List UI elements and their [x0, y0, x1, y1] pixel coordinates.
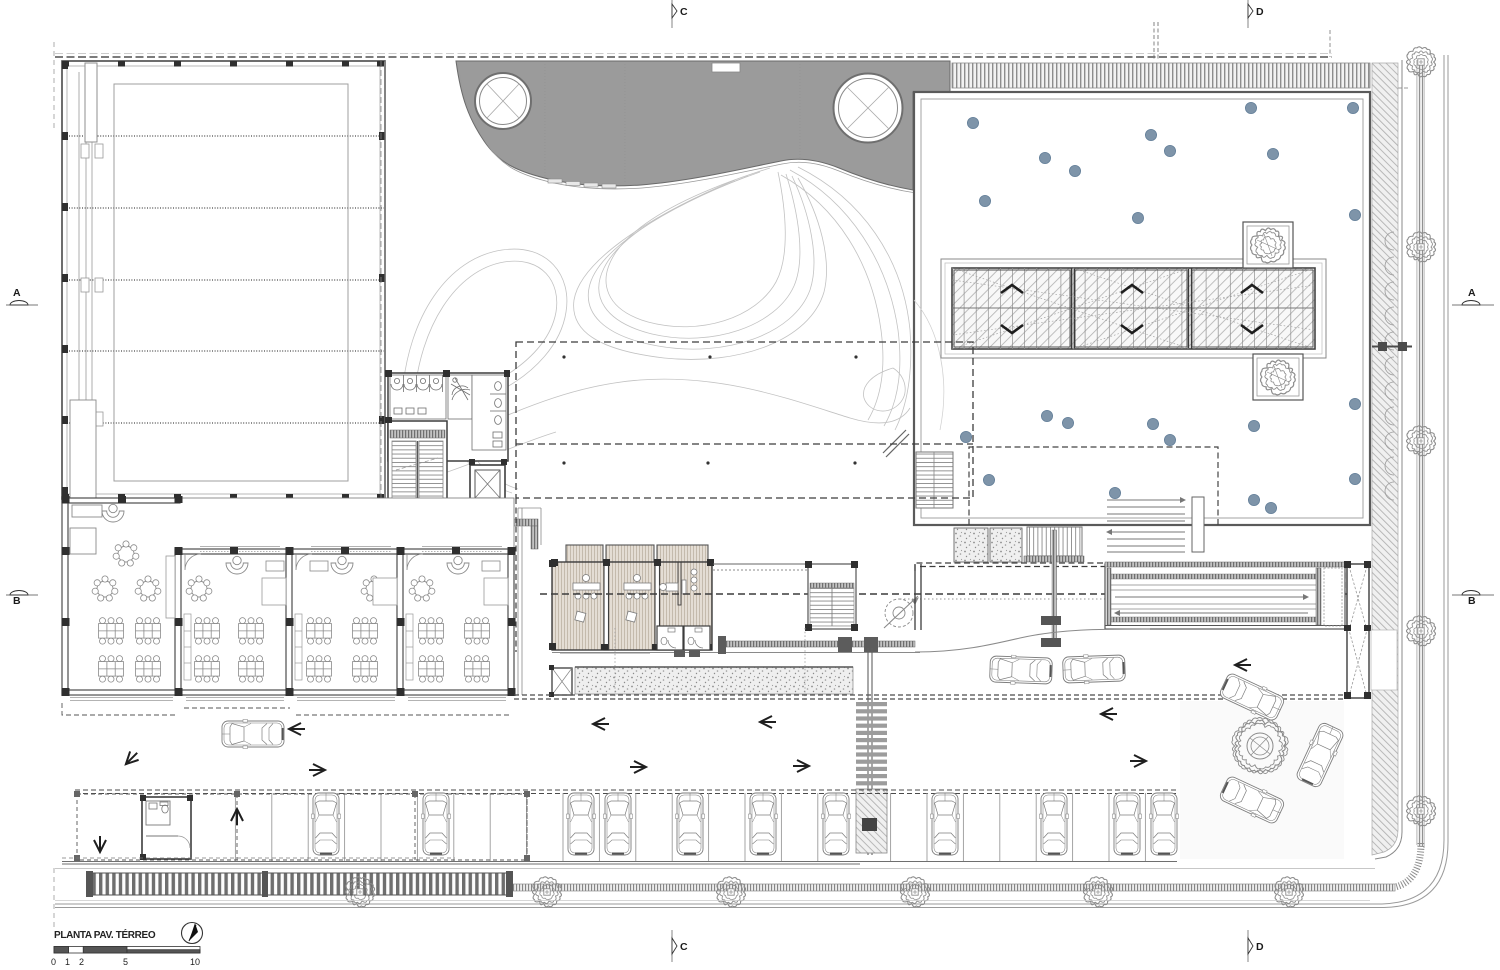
svg-text:PLANTA PAV. TÉRREO: PLANTA PAV. TÉRREO: [54, 928, 156, 941]
svg-text:2: 2: [79, 957, 84, 967]
svg-text:A: A: [13, 287, 21, 299]
svg-text:1: 1: [65, 957, 70, 967]
svg-text:10: 10: [190, 957, 200, 967]
svg-text:D: D: [1256, 941, 1264, 953]
svg-text:B: B: [13, 595, 21, 607]
svg-text:A: A: [1468, 287, 1476, 299]
svg-text:C: C: [680, 6, 688, 18]
svg-text:C: C: [680, 941, 688, 953]
svg-text:B: B: [1468, 595, 1476, 607]
svg-text:0: 0: [51, 957, 56, 967]
svg-text:5: 5: [123, 957, 128, 967]
svg-text:D: D: [1256, 6, 1264, 18]
